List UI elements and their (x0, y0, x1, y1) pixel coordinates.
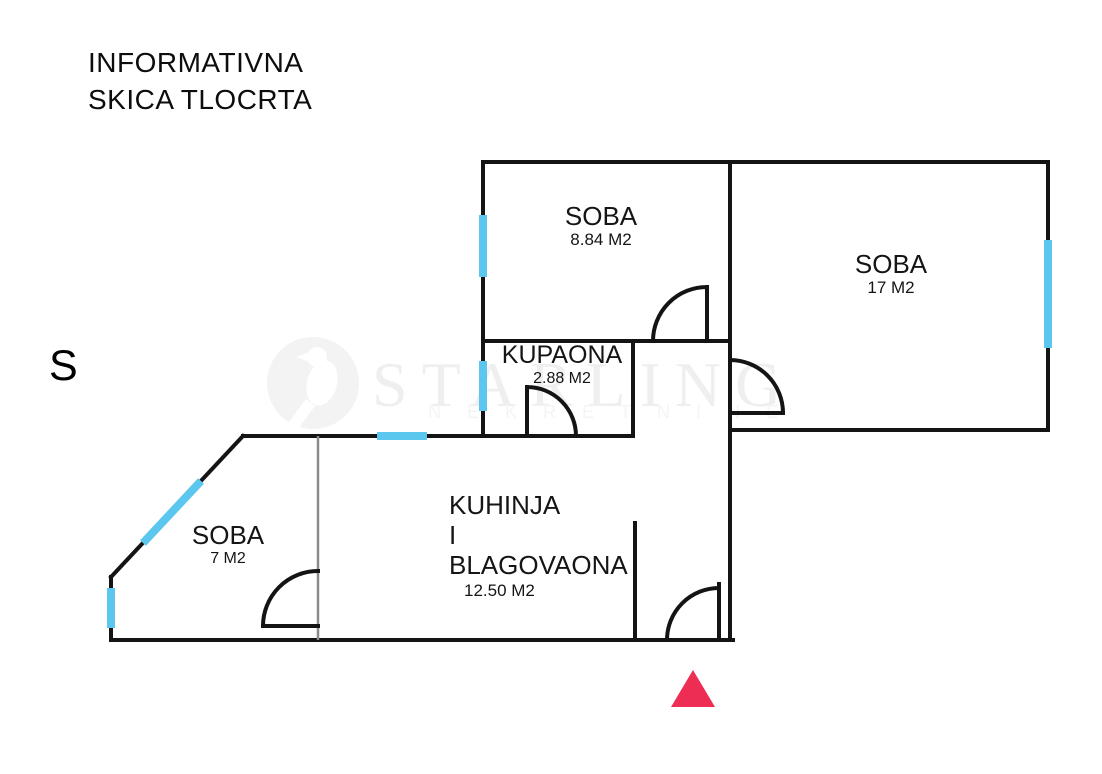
room-area: 8.84 M2 (565, 230, 637, 249)
floorplan-sketch: STARLING NEKRETNINE (0, 0, 1102, 774)
room-label-soba-top: SOBA 8.84 M2 (565, 202, 637, 249)
door-soba-right (730, 360, 783, 413)
door-soba-top (653, 287, 707, 341)
room-name-line3: BLAGOVAONA (449, 550, 628, 580)
room-area: 17 M2 (855, 278, 927, 297)
room-label-kupaona: KUPAONA 2.88 M2 (502, 341, 622, 388)
room-area: 7 M2 (192, 549, 264, 568)
page-title-line2: SKICA TLOCRTA (88, 81, 312, 118)
room-area: 2.88 M2 (502, 369, 622, 388)
room-area: 12.50 M2 (464, 581, 628, 601)
page-title-line1: INFORMATIVNA (88, 44, 312, 81)
room-name: SOBA (855, 250, 927, 278)
room-name: SOBA (565, 202, 637, 230)
door-entrance (667, 584, 719, 640)
room-name: SOBA (192, 521, 264, 549)
room-name-line2: I (449, 520, 628, 550)
door-kupaona (527, 387, 576, 436)
entrance-triangle-icon (671, 670, 715, 707)
room-label-kuhinja: KUHINJA I BLAGOVAONA 12.50 M2 (449, 490, 628, 601)
north-indicator: S (49, 342, 78, 391)
door-soba-left (263, 571, 318, 626)
page-title: INFORMATIVNA SKICA TLOCRTA (88, 44, 312, 118)
room-name: KUPAONA (502, 341, 622, 369)
room-label-soba-right: SOBA 17 M2 (855, 250, 927, 297)
room-label-soba-left: SOBA 7 M2 (192, 521, 264, 568)
room-name-line1: KUHINJA (449, 490, 628, 520)
